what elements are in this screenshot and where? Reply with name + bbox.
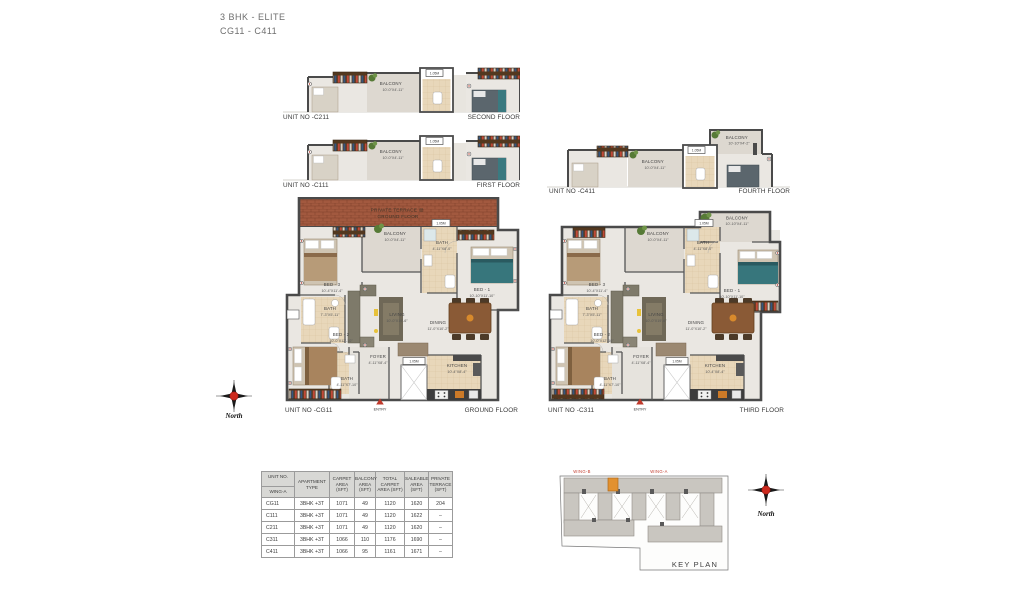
lift-label: 1.05M (409, 360, 418, 364)
floor-plan-second: 1.05M BALCONY 10'-0"X4'-11" (283, 62, 520, 114)
cell-type: 3BHK +3T (295, 546, 330, 558)
cell-type: 3BHK +3T (295, 498, 330, 510)
table-row: C4113BHK +3T10669511611671– (262, 546, 453, 558)
cell-total: 1120 (376, 510, 405, 522)
fourth-floor-caption: UNIT NO -C411 FOURTH FLOOR (549, 188, 790, 195)
private-terrace (299, 198, 498, 227)
cell-type: 3BHK +3T (295, 522, 330, 534)
unit-label: UNIT NO -C411 (549, 188, 595, 195)
wardrobe (333, 140, 367, 151)
floor-label: THIRD FLOOR (740, 407, 784, 414)
wardrobe (333, 227, 365, 237)
north-label: North (756, 510, 774, 518)
floor-plan-fourth: 1.05M BALCONY 10'-0"X4'-11" BALCONY 10'-… (547, 126, 790, 190)
floor-label: SECOND FLOOR (468, 114, 520, 121)
cell-terrace: – (429, 534, 453, 546)
north-label: North (224, 412, 242, 420)
cell-total: 1120 (376, 522, 405, 534)
bed (738, 250, 778, 284)
first-floor-caption: UNIT NO -C111 FIRST FLOOR (283, 182, 520, 189)
cell-terrace: – (429, 510, 453, 522)
foyer-cabinet (656, 343, 686, 356)
cell-type: 3BHK +3T (295, 510, 330, 522)
table-row: C1113BHK +3T10714911201622– (262, 510, 453, 522)
page-title: 3 BHK - ELITE CG11 - C411 (220, 11, 286, 39)
wardrobe (478, 68, 520, 79)
cell-unit: C211 (262, 522, 295, 534)
cell-carpet: 1071 (330, 522, 355, 534)
wardrobe (597, 146, 628, 157)
unit-label: UNIT NO -C111 (283, 182, 329, 189)
wardrobe (458, 230, 494, 240)
stove (698, 391, 711, 400)
key-plan-label: KEY PLAN (645, 560, 745, 569)
lift-label: 1.05M (430, 140, 439, 144)
cell-total: 1161 (376, 546, 405, 558)
cell-terrace: – (429, 522, 453, 534)
table-header-row: UNIT NO.WING-A APARTMENTTYPE CARPETAREA(… (262, 472, 453, 498)
floor-plan-first: 1.05M BALCONY 10'-0"X4'-11" (283, 130, 520, 182)
cell-unit: C111 (262, 510, 295, 522)
floorplan-sheet: { "title": {"line1": "3 BHK - ELITE", "l… (0, 0, 1024, 591)
col-header-apartment-type: APARTMENTTYPE (295, 472, 330, 498)
floor-label: FIRST FLOOR (477, 182, 520, 189)
wing-left-label: WING-B (573, 469, 590, 474)
col-header-total-carpet: TOTALCARPETAREA (SFT) (376, 472, 405, 498)
cell-balcony: 110 (355, 534, 376, 546)
wardrobe (552, 389, 604, 399)
lift-label: 1.05M (672, 360, 681, 364)
col-header-saleable-area: SALEABLEAREA(SFT) (405, 472, 429, 498)
cell-total: 1120 (376, 498, 405, 510)
table-row: CG113BHK +3T10714911201620204 (262, 498, 453, 510)
floor-plan-ground: 1.05M 1.05M PRIVATE TERRACE @ GROUND FLO… (285, 197, 520, 415)
cell-unit: CG11 (262, 498, 295, 510)
floor-label: GROUND FLOOR (465, 407, 518, 414)
cell-balcony: 95 (355, 546, 376, 558)
wardrobe (573, 228, 605, 238)
wardrobe (289, 389, 341, 399)
sink (469, 391, 478, 399)
cell-carpet: 1066 (330, 534, 355, 546)
col-header-balcony-area: BALCONYAREA(SFT) (355, 472, 376, 498)
terrace-label: PRIVATE TERRACE @ GROUND FLOOR (371, 208, 426, 220)
table-row: C3113BHK +3T106611011761690– (262, 534, 453, 546)
cell-unit: C411 (262, 546, 295, 558)
wardrobe (333, 72, 367, 83)
bed (304, 239, 337, 285)
north-compass: North (214, 378, 254, 422)
wing-right-label: WING-A (650, 469, 667, 474)
third-floor-caption: UNIT NO -C311 THIRD FLOOR (548, 407, 784, 414)
lift-label: 1.05M (430, 72, 439, 76)
cell-carpet: 1066 (330, 546, 355, 558)
page-title-line1: 3 BHK - ELITE (220, 11, 286, 25)
second-floor-caption: UNIT NO -C211 SECOND FLOOR (283, 114, 520, 121)
area-table: UNIT NO.WING-A APARTMENTTYPE CARPETAREA(… (261, 471, 453, 558)
cell-saleable: 1671 (405, 546, 429, 558)
cell-carpet: 1071 (330, 510, 355, 522)
unit-label: UNIT NO -C311 (548, 407, 594, 414)
ground-floor-caption: UNIT NO -CG11 GROUND FLOOR (285, 407, 518, 414)
cell-saleable: 1690 (405, 534, 429, 546)
cell-type: 3BHK +3T (295, 534, 330, 546)
key-plan: WING-B WING-A (552, 468, 744, 572)
cell-carpet: 1071 (330, 498, 355, 510)
lift-label: 1.05M (436, 222, 445, 226)
table-row: C2113BHK +3T10714911201620– (262, 522, 453, 534)
bed (556, 347, 600, 385)
north-compass: North (746, 472, 786, 520)
cell-unit: C311 (262, 534, 295, 546)
floor-plan-third: 1.05M 1.05M BED - 310'-4"X11'-4" BALCONY… (548, 205, 788, 418)
unit-label: UNIT NO -C211 (283, 114, 329, 121)
cell-saleable: 1620 (405, 498, 429, 510)
sink (732, 391, 741, 399)
cell-terrace: – (429, 546, 453, 558)
col-header-carpet-area: CARPETAREA(SFT) (330, 472, 355, 498)
cell-balcony: 49 (355, 498, 376, 510)
wardrobe (478, 136, 520, 147)
cell-saleable: 1620 (405, 522, 429, 534)
lift-label: 1.05M (692, 149, 701, 153)
cell-terrace: 204 (429, 498, 453, 510)
cell-total: 1176 (376, 534, 405, 546)
bed (471, 247, 513, 283)
cell-balcony: 49 (355, 522, 376, 534)
unit-label: UNIT NO -CG11 (285, 407, 333, 414)
lift-label: 1.05M (699, 222, 708, 226)
page-title-line2: CG11 - C411 (220, 25, 286, 39)
bed (293, 347, 337, 385)
room-label-balcony2: BALCONY 10'-10"X4'-2" (726, 126, 753, 146)
cell-balcony: 49 (355, 510, 376, 522)
stove (435, 391, 448, 400)
highlighted-unit (608, 478, 618, 491)
cell-saleable: 1622 (405, 510, 429, 522)
col-header-private-terrace: PRIVATETERRACE(SFT) (429, 472, 453, 498)
floor-label: FOURTH FLOOR (739, 188, 791, 195)
col-header-unit-no: UNIT NO.WING-A (262, 472, 295, 498)
foyer-cabinet (398, 343, 428, 356)
bed (567, 239, 600, 285)
